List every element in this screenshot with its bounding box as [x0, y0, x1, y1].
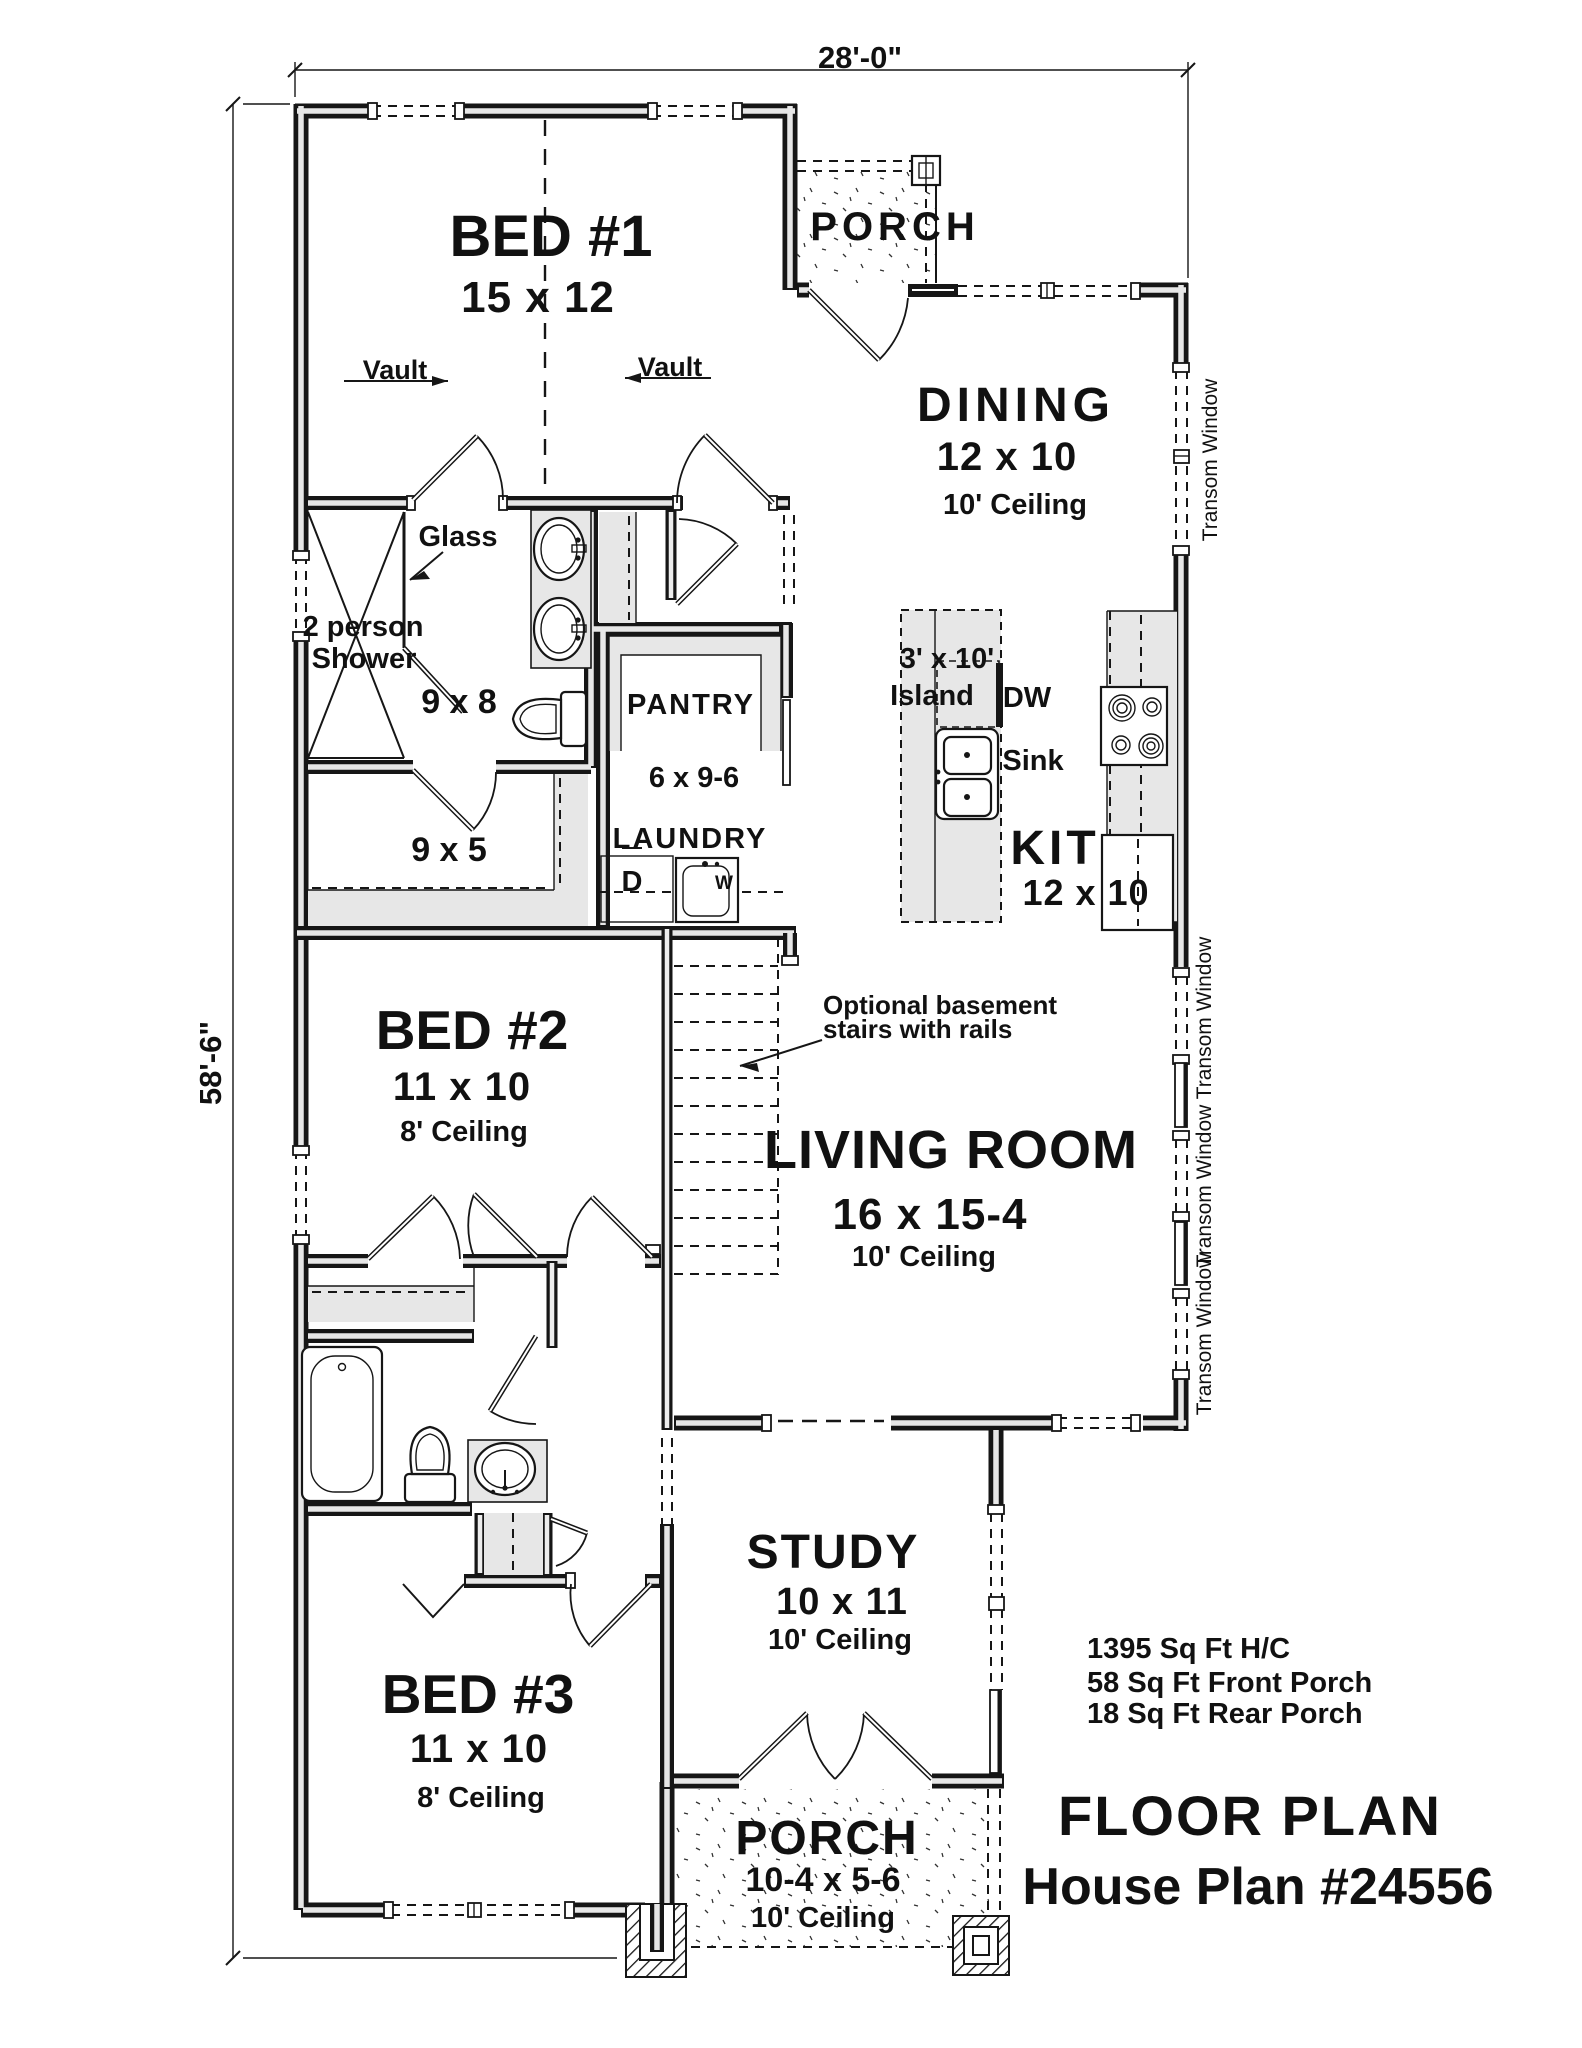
svg-text:16 x 15-4: 16 x 15-4: [833, 1190, 1028, 1239]
svg-text:10' Ceiling: 10' Ceiling: [751, 1902, 895, 1934]
svg-text:3' x 10': 3' x 10': [900, 643, 994, 675]
svg-text:stairs with rails: stairs with rails: [823, 1014, 1012, 1044]
svg-text:PORCH: PORCH: [735, 1812, 918, 1865]
svg-text:LIVING ROOM: LIVING ROOM: [764, 1120, 1138, 1180]
svg-text:Vault: Vault: [638, 352, 703, 382]
svg-text:Transom Window: Transom Window: [1193, 936, 1216, 1099]
svg-text:Island: Island: [890, 680, 974, 712]
svg-text:Transom Window: Transom Window: [1193, 1252, 1216, 1415]
svg-text:D: D: [622, 866, 643, 898]
svg-text:58'-6": 58'-6": [193, 1021, 228, 1105]
svg-text:15 x 12: 15 x 12: [461, 273, 615, 322]
svg-text:STUDY: STUDY: [747, 1526, 920, 1579]
svg-text:House Plan #24556: House Plan #24556: [1022, 1858, 1493, 1916]
svg-text:Sink: Sink: [1002, 745, 1064, 777]
svg-text:8' Ceiling: 8' Ceiling: [400, 1116, 528, 1148]
svg-text:8' Ceiling: 8' Ceiling: [417, 1782, 545, 1814]
svg-text:10-4 x 5-6: 10-4 x 5-6: [746, 1861, 901, 1899]
svg-text:DINING: DINING: [917, 379, 1115, 432]
svg-text:11 x 10: 11 x 10: [393, 1065, 531, 1109]
svg-text:FLOOR PLAN: FLOOR PLAN: [1058, 1784, 1442, 1847]
svg-text:28'-0": 28'-0": [818, 40, 902, 75]
svg-text:Shower: Shower: [312, 643, 417, 675]
svg-text:2 person: 2 person: [303, 611, 424, 643]
svg-text:BED #1: BED #1: [449, 204, 652, 269]
svg-text:18 Sq Ft Rear Porch: 18 Sq Ft Rear Porch: [1087, 1698, 1363, 1730]
svg-text:Transom Window: Transom Window: [1193, 1104, 1216, 1267]
svg-text:12 x 10: 12 x 10: [1022, 872, 1149, 913]
svg-text:KIT: KIT: [1010, 822, 1099, 875]
svg-text:Vault: Vault: [363, 355, 428, 385]
svg-text:9 x 8: 9 x 8: [421, 683, 497, 721]
svg-text:10 x 11: 10 x 11: [776, 1581, 908, 1623]
svg-text:Glass: Glass: [419, 521, 498, 553]
svg-text:W: W: [715, 873, 733, 894]
svg-text:Transom Window: Transom Window: [1199, 378, 1222, 541]
svg-text:10' Ceiling: 10' Ceiling: [768, 1624, 912, 1656]
svg-text:1395 Sq Ft H/C: 1395 Sq Ft H/C: [1087, 1633, 1290, 1665]
svg-text:BED #3: BED #3: [382, 1663, 575, 1725]
svg-text:11 x 10: 11 x 10: [410, 1727, 548, 1771]
svg-text:BED #2: BED #2: [376, 999, 569, 1061]
svg-text:PORCH: PORCH: [810, 205, 979, 249]
svg-text:10' Ceiling: 10' Ceiling: [852, 1241, 996, 1273]
svg-text:PANTRY: PANTRY: [627, 689, 755, 721]
svg-text:6 x 9-6: 6 x 9-6: [649, 762, 739, 794]
svg-text:12 x 10: 12 x 10: [937, 435, 1077, 479]
svg-text:DW: DW: [1003, 682, 1052, 714]
svg-text:58 Sq Ft Front Porch: 58 Sq Ft Front Porch: [1087, 1667, 1372, 1699]
svg-text:LAUNDRY: LAUNDRY: [613, 823, 768, 855]
svg-text:9 x 5: 9 x 5: [411, 831, 487, 869]
svg-text:10' Ceiling: 10' Ceiling: [943, 489, 1087, 521]
